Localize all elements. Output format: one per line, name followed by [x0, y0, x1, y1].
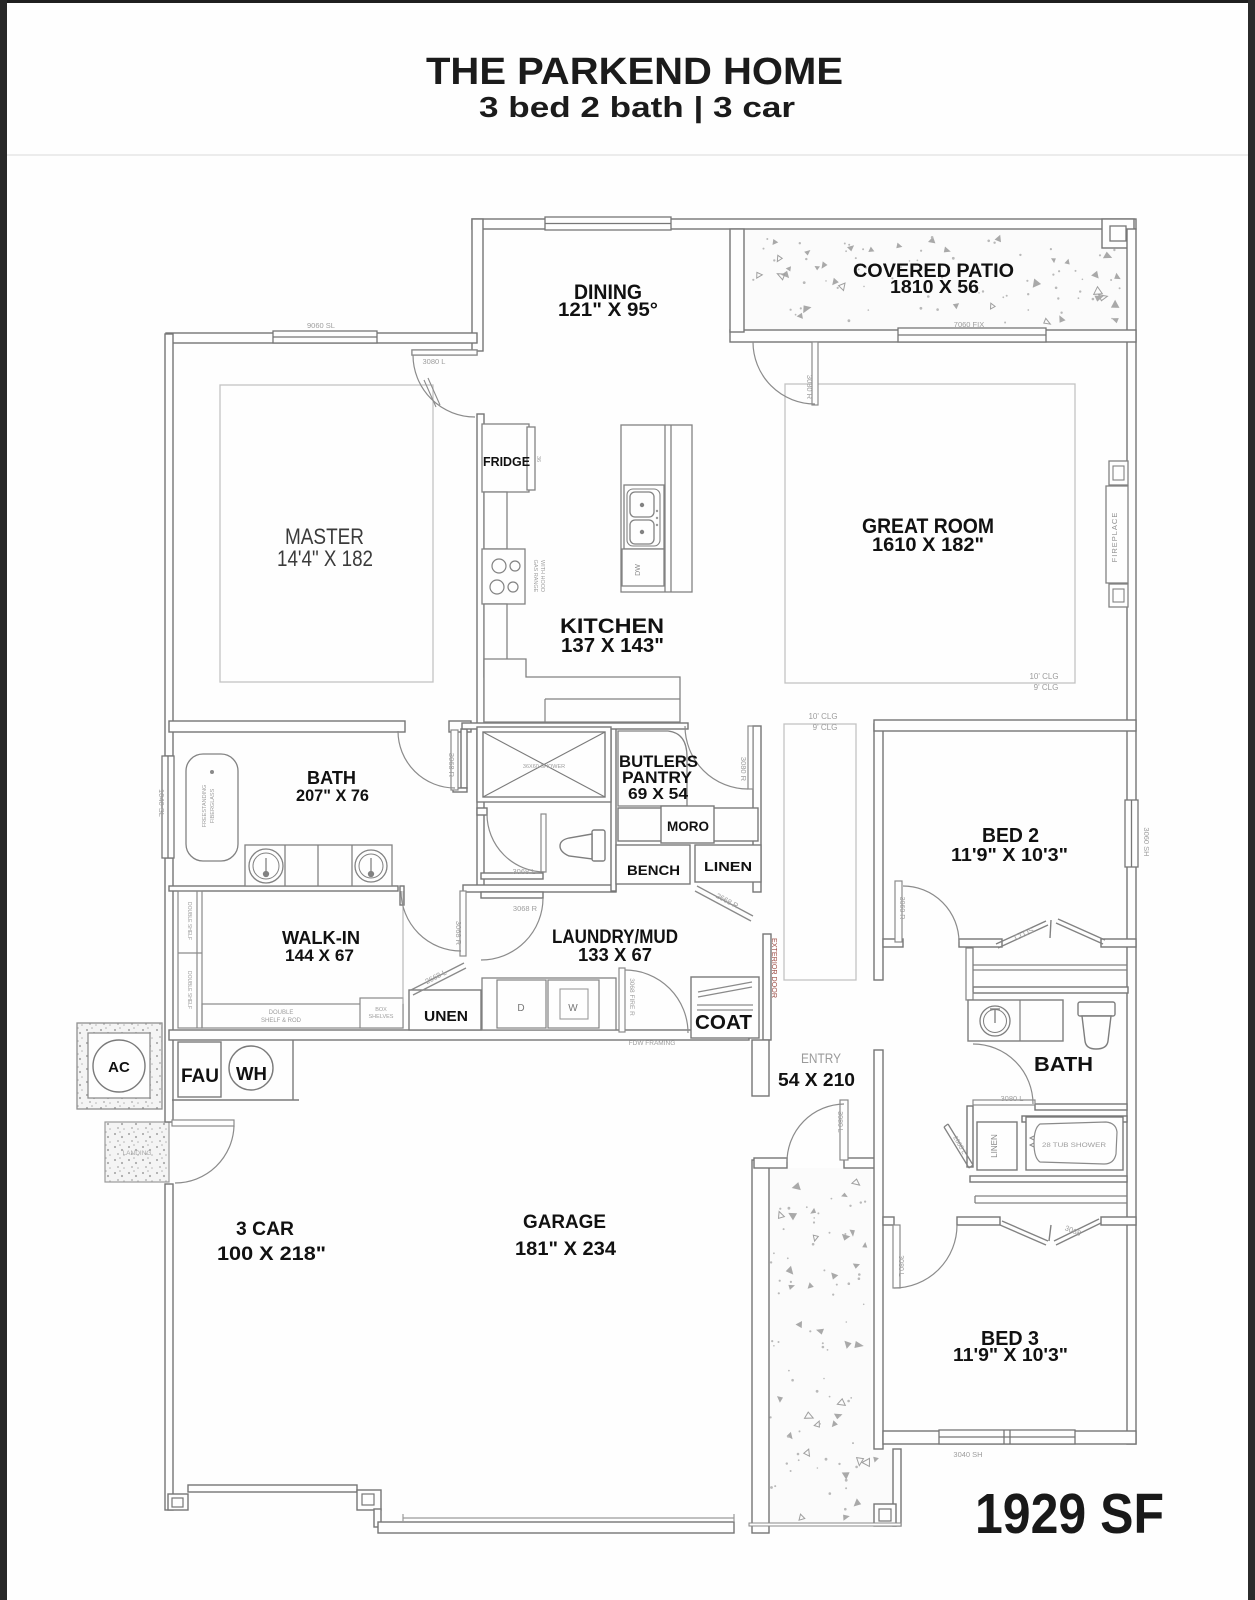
- svg-text:BED 2: BED 2: [982, 825, 1039, 847]
- svg-text:121" X 95°: 121" X 95°: [558, 300, 658, 321]
- svg-text:3060 SH: 3060 SH: [1142, 827, 1151, 856]
- svg-text:69 X 54: 69 X 54: [628, 786, 688, 803]
- svg-text:BOX: BOX: [375, 1007, 387, 1013]
- svg-text:10' CLG: 10' CLG: [808, 712, 837, 721]
- svg-text:DOUBLE SHELF: DOUBLE SHELF: [186, 971, 192, 1009]
- svg-text:BATH: BATH: [1034, 1054, 1093, 1076]
- svg-text:LINEN: LINEN: [990, 1134, 999, 1158]
- svg-text:36: 36: [535, 456, 541, 462]
- svg-text:DOUBLE SHELF: DOUBLE SHELF: [186, 902, 192, 940]
- svg-text:DW: DW: [635, 564, 642, 576]
- svg-text:AC: AC: [108, 1059, 130, 1076]
- svg-text:137 X 143": 137 X 143": [561, 635, 664, 657]
- svg-text:D: D: [517, 1003, 524, 1014]
- svg-text:MORO: MORO: [667, 818, 709, 834]
- svg-text:3 CAR: 3 CAR: [236, 1219, 294, 1240]
- svg-text:W: W: [568, 1003, 578, 1014]
- svg-text:GAS RANGE: GAS RANGE: [532, 560, 538, 593]
- svg-text:9' CLG: 9' CLG: [1034, 683, 1059, 692]
- svg-text:FIREPLACE: FIREPLACE: [1110, 512, 1119, 563]
- svg-text:181" X 234: 181" X 234: [515, 1239, 616, 1260]
- svg-text:LANDING: LANDING: [123, 1150, 152, 1157]
- svg-text:BATH: BATH: [307, 768, 356, 788]
- svg-text:28 TUB SHOWER: 28 TUB SHOWER: [1042, 1142, 1106, 1149]
- svg-text:3068 R: 3068 R: [513, 904, 538, 913]
- svg-text:3 bed 2 bath | 3 car: 3 bed 2 bath | 3 car: [479, 92, 795, 124]
- svg-text:14'4" X 182: 14'4" X 182: [277, 546, 373, 571]
- svg-text:3060 R: 3060 R: [898, 897, 905, 920]
- svg-text:DOUBLE: DOUBLE: [269, 1010, 294, 1016]
- svg-text:1810 X 56: 1810 X 56: [890, 277, 979, 297]
- svg-text:3068 FIRE R: 3068 FIRE R: [628, 978, 635, 1016]
- svg-text:10' CLG: 10' CLG: [1029, 672, 1058, 681]
- svg-text:11'9" X 10'3": 11'9" X 10'3": [951, 845, 1068, 865]
- svg-text:WITH HOOD: WITH HOOD: [539, 560, 545, 592]
- svg-text:FRIDGE: FRIDGE: [483, 455, 530, 469]
- svg-text:FIBERGLASS: FIBERGLASS: [210, 788, 216, 823]
- svg-text:100 X 218": 100 X 218": [217, 1244, 326, 1265]
- svg-text:SHELVES: SHELVES: [369, 1014, 394, 1020]
- svg-text:WH: WH: [236, 1064, 267, 1084]
- svg-text:3068 L: 3068 L: [513, 867, 536, 876]
- svg-text:9060 SL: 9060 SL: [307, 321, 335, 330]
- svg-text:3080 L: 3080 L: [1001, 1094, 1024, 1103]
- svg-text:7060 FIX: 7060 FIX: [954, 320, 984, 329]
- svg-text:144 X 67: 144 X 67: [285, 946, 354, 965]
- svg-text:SHELF & ROD: SHELF & ROD: [261, 1018, 302, 1024]
- svg-text:FDW FRAMING: FDW FRAMING: [629, 1040, 676, 1047]
- svg-text:PANTRY: PANTRY: [622, 769, 692, 787]
- svg-text:1040 SL: 1040 SL: [157, 789, 166, 817]
- svg-text:GARAGE: GARAGE: [523, 1212, 606, 1233]
- svg-text:LINEN: LINEN: [704, 859, 752, 874]
- svg-text:207" X 76: 207" X 76: [296, 786, 369, 805]
- svg-text:THE PARKEND HOME: THE PARKEND HOME: [426, 51, 843, 93]
- svg-text:COAT: COAT: [695, 1012, 752, 1034]
- svg-text:3080 R: 3080 R: [739, 757, 748, 782]
- svg-text:1929 SF: 1929 SF: [975, 1482, 1164, 1546]
- svg-text:ENTRY: ENTRY: [801, 1050, 842, 1066]
- svg-text:3068 R: 3068 R: [447, 753, 456, 778]
- svg-text:3080 L: 3080 L: [897, 1255, 904, 1277]
- svg-text:133 X 67: 133 X 67: [578, 945, 652, 965]
- svg-text:54 X 210: 54 X 210: [778, 1070, 855, 1090]
- svg-text:FAU: FAU: [181, 1066, 219, 1087]
- svg-text:BENCH: BENCH: [627, 862, 680, 878]
- svg-text:3080 R: 3080 R: [805, 375, 814, 400]
- svg-text:WALK-IN: WALK-IN: [282, 928, 360, 948]
- svg-text:FREESTANDING: FREESTANDING: [202, 785, 208, 828]
- svg-text:9' CLG: 9' CLG: [813, 723, 838, 732]
- svg-text:EXTERIOR DOOR: EXTERIOR DOOR: [770, 938, 777, 998]
- svg-text:3080 L: 3080 L: [836, 1111, 843, 1133]
- svg-text:11'9" X 10'3": 11'9" X 10'3": [953, 1345, 1068, 1365]
- svg-text:1610 X 182": 1610 X 182": [872, 535, 984, 556]
- svg-text:UNEN: UNEN: [424, 1008, 468, 1025]
- svg-text:3080 L: 3080 L: [423, 357, 446, 366]
- svg-text:3068 R: 3068 R: [454, 921, 463, 946]
- svg-text:3040 SH: 3040 SH: [953, 1450, 982, 1459]
- svg-text:36X60 SHOWER: 36X60 SHOWER: [523, 764, 565, 770]
